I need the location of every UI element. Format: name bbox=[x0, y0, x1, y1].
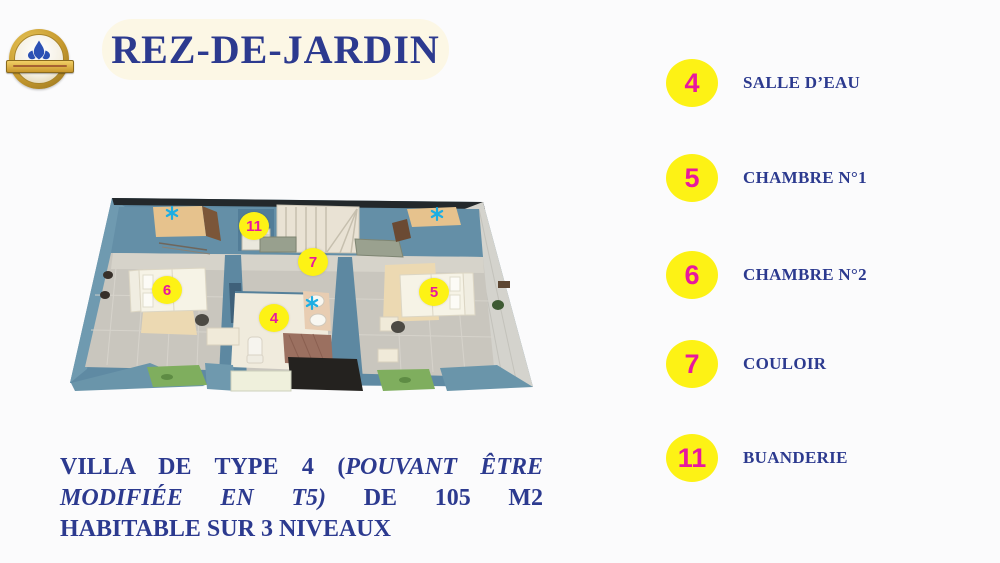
agency-logo bbox=[9, 29, 69, 89]
legend-number-badge: 4 bbox=[666, 59, 718, 107]
legend-number-badge: 6 bbox=[666, 251, 718, 299]
legend-number-badge: 7 bbox=[666, 340, 718, 388]
logo-ribbon bbox=[6, 60, 74, 73]
page-title: REZ-DE-JARDIN bbox=[111, 26, 440, 73]
legend-number-badge: 5 bbox=[666, 154, 718, 202]
legend-label: CHAMBRE N°1 bbox=[743, 168, 867, 188]
legend-item-buanderie: 11 BUANDERIE bbox=[666, 434, 848, 482]
caption-line-2: MODIFIÉE EN T5) DE 105 M2 bbox=[60, 483, 543, 514]
legend-item-salle-deau: 4 SALLE D’EAU bbox=[666, 59, 860, 107]
title-banner: REZ-DE-JARDIN bbox=[102, 19, 449, 80]
slide: REZ-DE-JARDIN bbox=[0, 0, 1000, 563]
legend-label: BUANDERIE bbox=[743, 448, 848, 468]
legend-item-couloir: 7 COULOIR bbox=[666, 340, 826, 388]
legend-number-badge: 11 bbox=[666, 434, 718, 482]
villa-description: VILLA DE TYPE 4 (POUVANT ÊTRE MODIFIÉE E… bbox=[60, 452, 543, 545]
legend-label: SALLE D’EAU bbox=[743, 73, 860, 93]
legend-item-chambre-1: 5 CHAMBRE N°1 bbox=[666, 154, 867, 202]
legend-label: COULOIR bbox=[743, 354, 826, 374]
legend-label: CHAMBRE N°2 bbox=[743, 265, 867, 285]
caption-line-1: VILLA DE TYPE 4 (POUVANT ÊTRE bbox=[60, 452, 543, 483]
caption-line-3: HABITABLE SUR 3 NIVEAUX bbox=[60, 514, 543, 545]
legend-item-chambre-2: 6 CHAMBRE N°2 bbox=[666, 251, 867, 299]
floor-plan-render bbox=[55, 165, 535, 415]
